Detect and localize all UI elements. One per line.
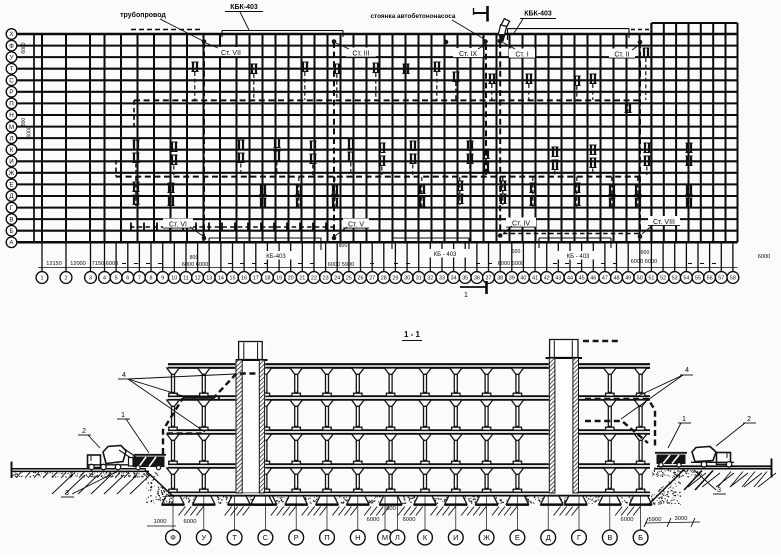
svg-text:У: У <box>201 533 206 542</box>
svg-text:Х: Х <box>9 31 13 38</box>
svg-text:27: 27 <box>369 275 375 281</box>
svg-text:44: 44 <box>567 275 573 281</box>
svg-text:11: 11 <box>183 275 189 281</box>
svg-text:2: 2 <box>65 275 68 281</box>
svg-text:32: 32 <box>427 275 433 281</box>
svg-text:Н: Н <box>9 112 13 119</box>
svg-text:5: 5 <box>115 275 118 281</box>
svg-text:Г: Г <box>577 533 581 542</box>
svg-text:26: 26 <box>358 275 364 281</box>
svg-text:М: М <box>9 124 14 131</box>
svg-text:К: К <box>423 533 428 542</box>
svg-text:24: 24 <box>334 275 340 281</box>
svg-text:Т: Т <box>232 533 237 542</box>
svg-text:П: П <box>324 533 329 542</box>
svg-text:46: 46 <box>590 275 596 281</box>
svg-text:3000: 3000 <box>675 516 688 522</box>
svg-text:28: 28 <box>381 275 387 281</box>
svg-text:К: К <box>10 147 14 154</box>
svg-text:45: 45 <box>579 275 585 281</box>
svg-text:4: 4 <box>122 370 126 379</box>
svg-text:6000 6000: 6000 6000 <box>631 259 657 265</box>
svg-text:17: 17 <box>253 275 259 281</box>
svg-text:6000: 6000 <box>184 519 197 525</box>
svg-text:47: 47 <box>602 275 608 281</box>
svg-text:16: 16 <box>241 275 247 281</box>
svg-text:4: 4 <box>685 365 689 374</box>
svg-text:1: 1 <box>464 292 468 299</box>
svg-text:1: 1 <box>121 410 125 419</box>
svg-text:6000: 6000 <box>621 517 634 523</box>
svg-text:41: 41 <box>532 275 538 281</box>
svg-text:Ст. V: Ст. V <box>348 221 364 228</box>
svg-text:12150: 12150 <box>46 261 62 267</box>
svg-text:Н: Н <box>355 533 360 542</box>
svg-text:35: 35 <box>462 275 468 281</box>
svg-text:30: 30 <box>404 275 410 281</box>
svg-text:3: 3 <box>717 485 721 494</box>
svg-text:4: 4 <box>103 275 106 281</box>
svg-text:КБК-403: КБК-403 <box>230 4 258 11</box>
svg-text:7150: 7150 <box>92 261 104 267</box>
svg-text:6000: 6000 <box>21 42 27 53</box>
svg-text:13: 13 <box>206 275 212 281</box>
svg-text:КБ - 403: КБ - 403 <box>434 252 457 258</box>
svg-text:800: 800 <box>190 255 199 261</box>
svg-text:В: В <box>607 533 612 542</box>
svg-text:С: С <box>263 533 269 542</box>
svg-text:6000 6000: 6000 6000 <box>498 261 524 267</box>
svg-text:21: 21 <box>299 275 305 281</box>
svg-text:19: 19 <box>276 275 282 281</box>
svg-text:39: 39 <box>509 275 515 281</box>
svg-text:В: В <box>9 216 13 223</box>
svg-text:Ж: Ж <box>9 170 15 177</box>
svg-text:Ст. IX: Ст. IX <box>459 51 477 58</box>
svg-text:Б: Б <box>9 228 13 235</box>
svg-text:800: 800 <box>339 243 348 249</box>
svg-text:Ф: Ф <box>9 43 14 50</box>
svg-text:3: 3 <box>65 488 69 497</box>
svg-text:40: 40 <box>520 275 526 281</box>
svg-text:37: 37 <box>486 275 492 281</box>
svg-text:Ст. IV: Ст. IV <box>512 220 530 227</box>
svg-text:7: 7 <box>138 275 141 281</box>
svg-text:Ст. I: Ст. I <box>515 51 528 58</box>
svg-text:И: И <box>9 159 13 166</box>
svg-text:15: 15 <box>230 275 236 281</box>
svg-text:42: 42 <box>544 275 550 281</box>
svg-text:38: 38 <box>497 275 503 281</box>
svg-text:20: 20 <box>288 275 294 281</box>
svg-text:57: 57 <box>718 275 724 281</box>
svg-text:КБ-403: КБ-403 <box>266 254 286 260</box>
svg-text:1: 1 <box>41 275 44 281</box>
svg-text:56: 56 <box>707 275 713 281</box>
svg-text:Ж: Ж <box>483 533 490 542</box>
svg-text:Ст. VIII: Ст. VIII <box>653 219 675 226</box>
svg-text:600: 600 <box>641 250 650 256</box>
svg-text:36: 36 <box>474 275 480 281</box>
svg-text:Е: Е <box>9 182 13 189</box>
svg-text:Ст. VII: Ст. VII <box>221 50 241 57</box>
svg-text:Л: Л <box>395 533 400 542</box>
svg-text:Р: Р <box>9 89 13 96</box>
svg-text:С: С <box>9 78 14 85</box>
svg-text:КБК-403: КБК-403 <box>524 11 552 18</box>
svg-text:48: 48 <box>614 275 620 281</box>
svg-text:50: 50 <box>637 275 643 281</box>
svg-text:8: 8 <box>150 275 153 281</box>
svg-text:2: 2 <box>82 426 86 435</box>
svg-text:29: 29 <box>392 275 398 281</box>
svg-text:6000: 6000 <box>367 517 380 523</box>
svg-text:3: 3 <box>89 275 92 281</box>
svg-text:2: 2 <box>747 414 751 423</box>
svg-text:6000: 6000 <box>106 261 118 267</box>
svg-text:22: 22 <box>311 275 317 281</box>
svg-text:Л: Л <box>9 135 13 142</box>
svg-text:Р: Р <box>294 533 299 542</box>
svg-text:Ст. III: Ст. III <box>352 50 369 57</box>
svg-text:У: У <box>10 54 14 61</box>
svg-text:Б: Б <box>638 533 643 542</box>
svg-text:трубопровод: трубопровод <box>120 11 166 19</box>
svg-text:6000 5900: 6000 5900 <box>328 262 354 268</box>
svg-text:1 - 1: 1 - 1 <box>404 330 421 339</box>
svg-text:49: 49 <box>625 275 631 281</box>
svg-text:55: 55 <box>695 275 701 281</box>
svg-text:6000 6000: 6000 6000 <box>182 262 208 268</box>
svg-text:12: 12 <box>195 275 201 281</box>
svg-text:18: 18 <box>264 275 270 281</box>
svg-text:25: 25 <box>346 275 352 281</box>
svg-text:54: 54 <box>683 275 689 281</box>
svg-text:Т: Т <box>10 66 14 73</box>
svg-text:6000: 6000 <box>27 126 33 137</box>
svg-text:Д: Д <box>546 533 551 542</box>
svg-text:800: 800 <box>386 506 396 512</box>
svg-text:51: 51 <box>648 275 654 281</box>
svg-text:1: 1 <box>682 414 686 423</box>
svg-text:34: 34 <box>451 275 457 281</box>
svg-text:33: 33 <box>439 275 445 281</box>
svg-text:6: 6 <box>126 275 129 281</box>
svg-text:600: 600 <box>512 249 521 255</box>
svg-text:6000: 6000 <box>403 517 416 523</box>
svg-text:Ст. II: Ст. II <box>614 51 629 58</box>
svg-text:58: 58 <box>730 275 736 281</box>
svg-text:53: 53 <box>672 275 678 281</box>
svg-text:5900: 5900 <box>649 517 662 523</box>
svg-text:Ф: Ф <box>170 533 176 542</box>
svg-text:800: 800 <box>21 118 27 127</box>
svg-text:10: 10 <box>171 275 177 281</box>
svg-text:23: 23 <box>323 275 329 281</box>
svg-text:43: 43 <box>555 275 561 281</box>
svg-text:12000: 12000 <box>70 261 86 267</box>
svg-text:стоянка автобетононасоса: стоянка автобетононасоса <box>371 12 456 20</box>
svg-text:1000: 1000 <box>154 519 167 525</box>
svg-text:14: 14 <box>218 275 224 281</box>
svg-text:Е: Е <box>515 533 520 542</box>
svg-text:М: М <box>382 533 388 542</box>
svg-text:6000: 6000 <box>758 254 770 260</box>
svg-text:52: 52 <box>660 275 666 281</box>
svg-text:П: П <box>9 101 13 108</box>
svg-text:9: 9 <box>161 275 164 281</box>
svg-text:КБ - 403: КБ - 403 <box>567 254 590 260</box>
svg-text:И: И <box>453 533 458 542</box>
svg-text:31: 31 <box>416 275 422 281</box>
svg-text:Ст. VI: Ст. VI <box>169 221 187 228</box>
